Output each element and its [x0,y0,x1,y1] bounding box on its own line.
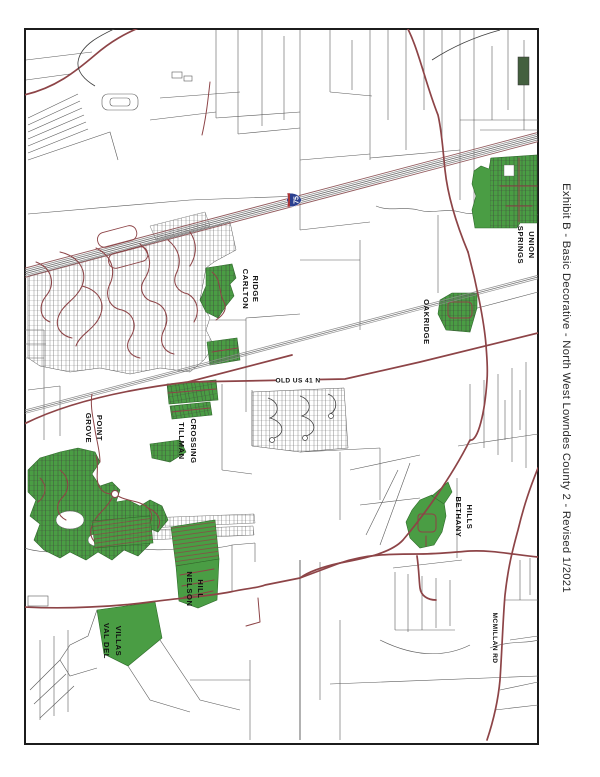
label-union-springs-line2: SPRINGS [516,226,525,264]
tillman-crossing-area [167,380,218,419]
label-carlton-ridge-line1: CARLTON [241,269,250,310]
label-oakridge: OAKRIDGE [422,299,431,345]
label-nelson-hill-line1: NELSON [185,571,194,606]
shield-route-number: 75 [294,196,301,204]
striped-subdivision-west [92,516,153,548]
label-val-del-villas-line1: VAL DEL [102,623,111,659]
oakridge-area [438,293,477,332]
label-mcmillan-rd: MCMILLAN RD [491,613,498,664]
map-canvas: 75 UNION SPRINGS CARLTON RIDGE OAKRIDGE … [0,0,600,777]
label-val-del-villas-line2: VILLAS [114,626,123,657]
scanned-map-page: 75 UNION SPRINGS CARLTON RIDGE OAKRIDGE … [0,0,600,777]
label-old-us-41: OLD US 41 N [275,378,320,385]
label-union-springs-line1: UNION [527,231,536,258]
label-grove-pointe-line1: GROVE [84,413,93,443]
label-nelson-hill-line2: HILL [196,579,205,598]
label-carlton-ridge-line2: RIDGE [251,275,260,302]
exhibit-title: Exhibit B - Basic Decorative - North Wes… [560,183,572,593]
label-tillman-crossing-line1: TILLMAN [177,422,186,460]
label-tillman-crossing-line2: CROSSING [189,418,198,463]
label-bethany-hills-line2: HILLS [465,505,474,530]
roundabout [112,491,119,498]
label-bethany-hills-line1: BETHANY [454,497,463,538]
label-grove-pointe-line2: POINT [95,415,104,441]
